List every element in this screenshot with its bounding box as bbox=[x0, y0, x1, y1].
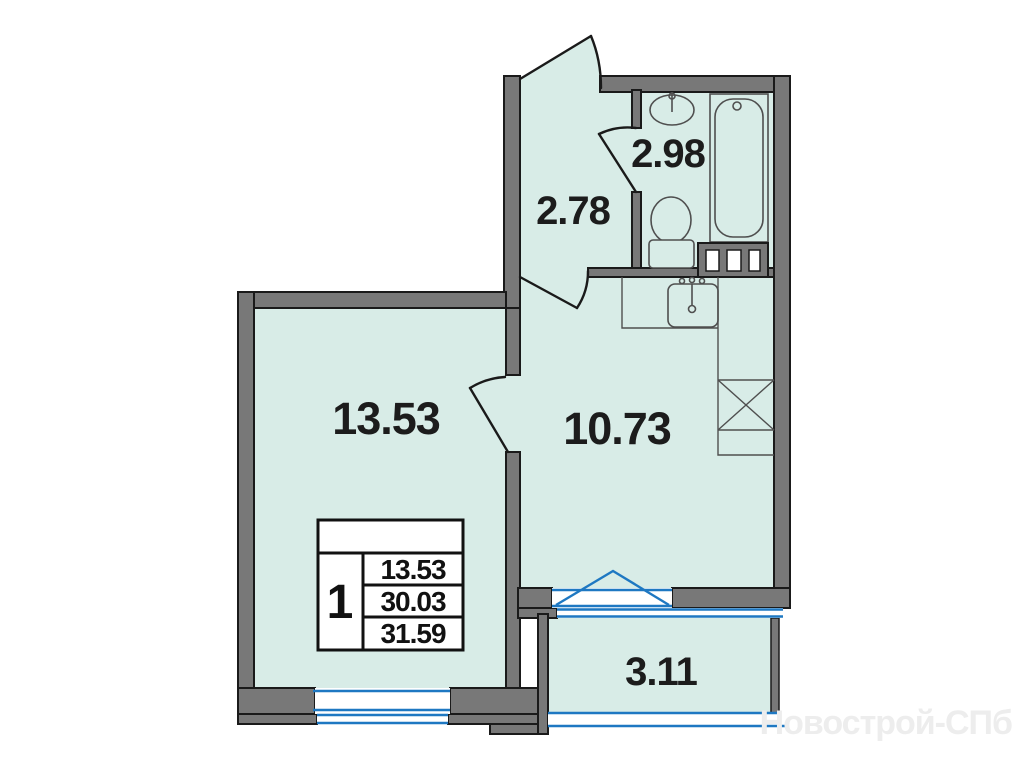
room-fill-entry-wedge bbox=[520, 36, 601, 90]
washing-machine-cell bbox=[727, 250, 741, 271]
room-label-kitchen: 10.73 bbox=[563, 403, 671, 454]
info-area: 30.03 bbox=[380, 586, 445, 617]
wall-segment bbox=[632, 192, 641, 270]
washing-machine-cell bbox=[749, 250, 760, 271]
window-living bbox=[313, 688, 450, 724]
wall-segment bbox=[238, 292, 254, 690]
floor-plan-canvas: 1 13.53 30.03 31.59 13.53 10.73 2.78 2.9… bbox=[0, 0, 1024, 768]
wall-segment bbox=[506, 452, 520, 692]
wall-segment bbox=[632, 90, 641, 128]
washing-machine bbox=[698, 243, 768, 277]
floor-plan-page: 1 13.53 30.03 31.59 13.53 10.73 2.78 2.9… bbox=[0, 0, 1024, 768]
toilet-tank bbox=[649, 240, 694, 268]
balcony-parapet bbox=[771, 618, 779, 714]
room-label-hallway: 2.78 bbox=[536, 189, 611, 233]
wall-segment bbox=[518, 588, 552, 608]
room-label-living: 13.53 bbox=[332, 393, 440, 444]
watermark: Новострой-СПб bbox=[760, 704, 1012, 742]
washing-machine-cell bbox=[706, 250, 719, 271]
room-label-bathroom: 2.98 bbox=[631, 132, 706, 176]
info-rooms-count: 1 bbox=[327, 576, 354, 629]
wall-segment bbox=[238, 292, 506, 308]
wall-segment bbox=[538, 614, 548, 734]
wall-segment bbox=[448, 714, 548, 724]
wall-segment bbox=[450, 688, 548, 714]
info-living-area: 13.53 bbox=[380, 554, 445, 585]
balcony-glazing bbox=[548, 713, 786, 726]
wall-segment bbox=[774, 76, 790, 608]
wall-segment bbox=[238, 688, 315, 714]
info-total-area: 31.59 bbox=[380, 618, 445, 649]
wall-segment bbox=[506, 308, 520, 375]
room-label-balcony: 3.11 bbox=[625, 650, 697, 694]
wall-segment bbox=[672, 588, 790, 608]
wall-segment bbox=[600, 76, 790, 92]
wall-segment bbox=[238, 714, 317, 724]
unit-info-table: 1 13.53 30.03 31.59 bbox=[318, 520, 463, 650]
wall-segment bbox=[504, 76, 520, 308]
window-gap bbox=[548, 714, 779, 725]
